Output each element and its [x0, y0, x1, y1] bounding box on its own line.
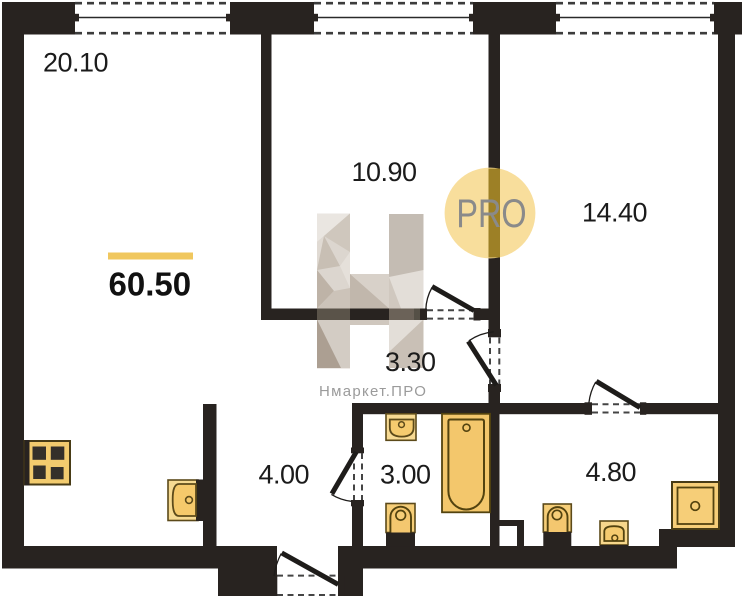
svg-text:4.00: 4.00: [259, 460, 310, 490]
svg-text:14.40: 14.40: [582, 198, 647, 228]
svg-text:Нмаркет.ПРО: Нмаркет.ПРО: [319, 383, 427, 400]
svg-text:3.00: 3.00: [380, 460, 431, 490]
svg-text:4.80: 4.80: [586, 457, 637, 487]
svg-text:3.30: 3.30: [385, 347, 436, 377]
svg-text:60.50: 60.50: [109, 266, 192, 303]
svg-text:20.10: 20.10: [43, 48, 108, 78]
svg-text:10.90: 10.90: [352, 157, 417, 187]
svg-text:PRO: PRO: [456, 191, 526, 236]
